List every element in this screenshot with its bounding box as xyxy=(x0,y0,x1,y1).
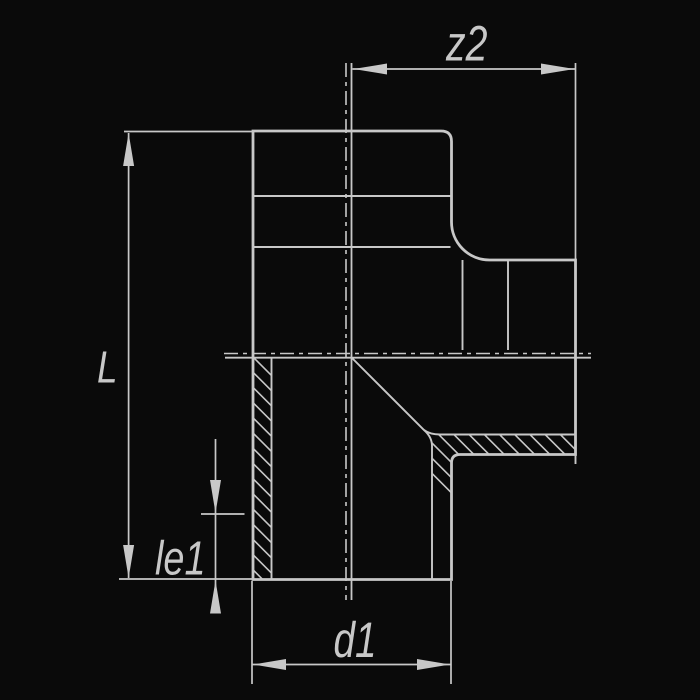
svg-text:L: L xyxy=(97,342,118,393)
svg-text:z2: z2 xyxy=(445,16,487,72)
svg-text:le1: le1 xyxy=(155,533,206,586)
svg-text:d1: d1 xyxy=(334,612,377,668)
